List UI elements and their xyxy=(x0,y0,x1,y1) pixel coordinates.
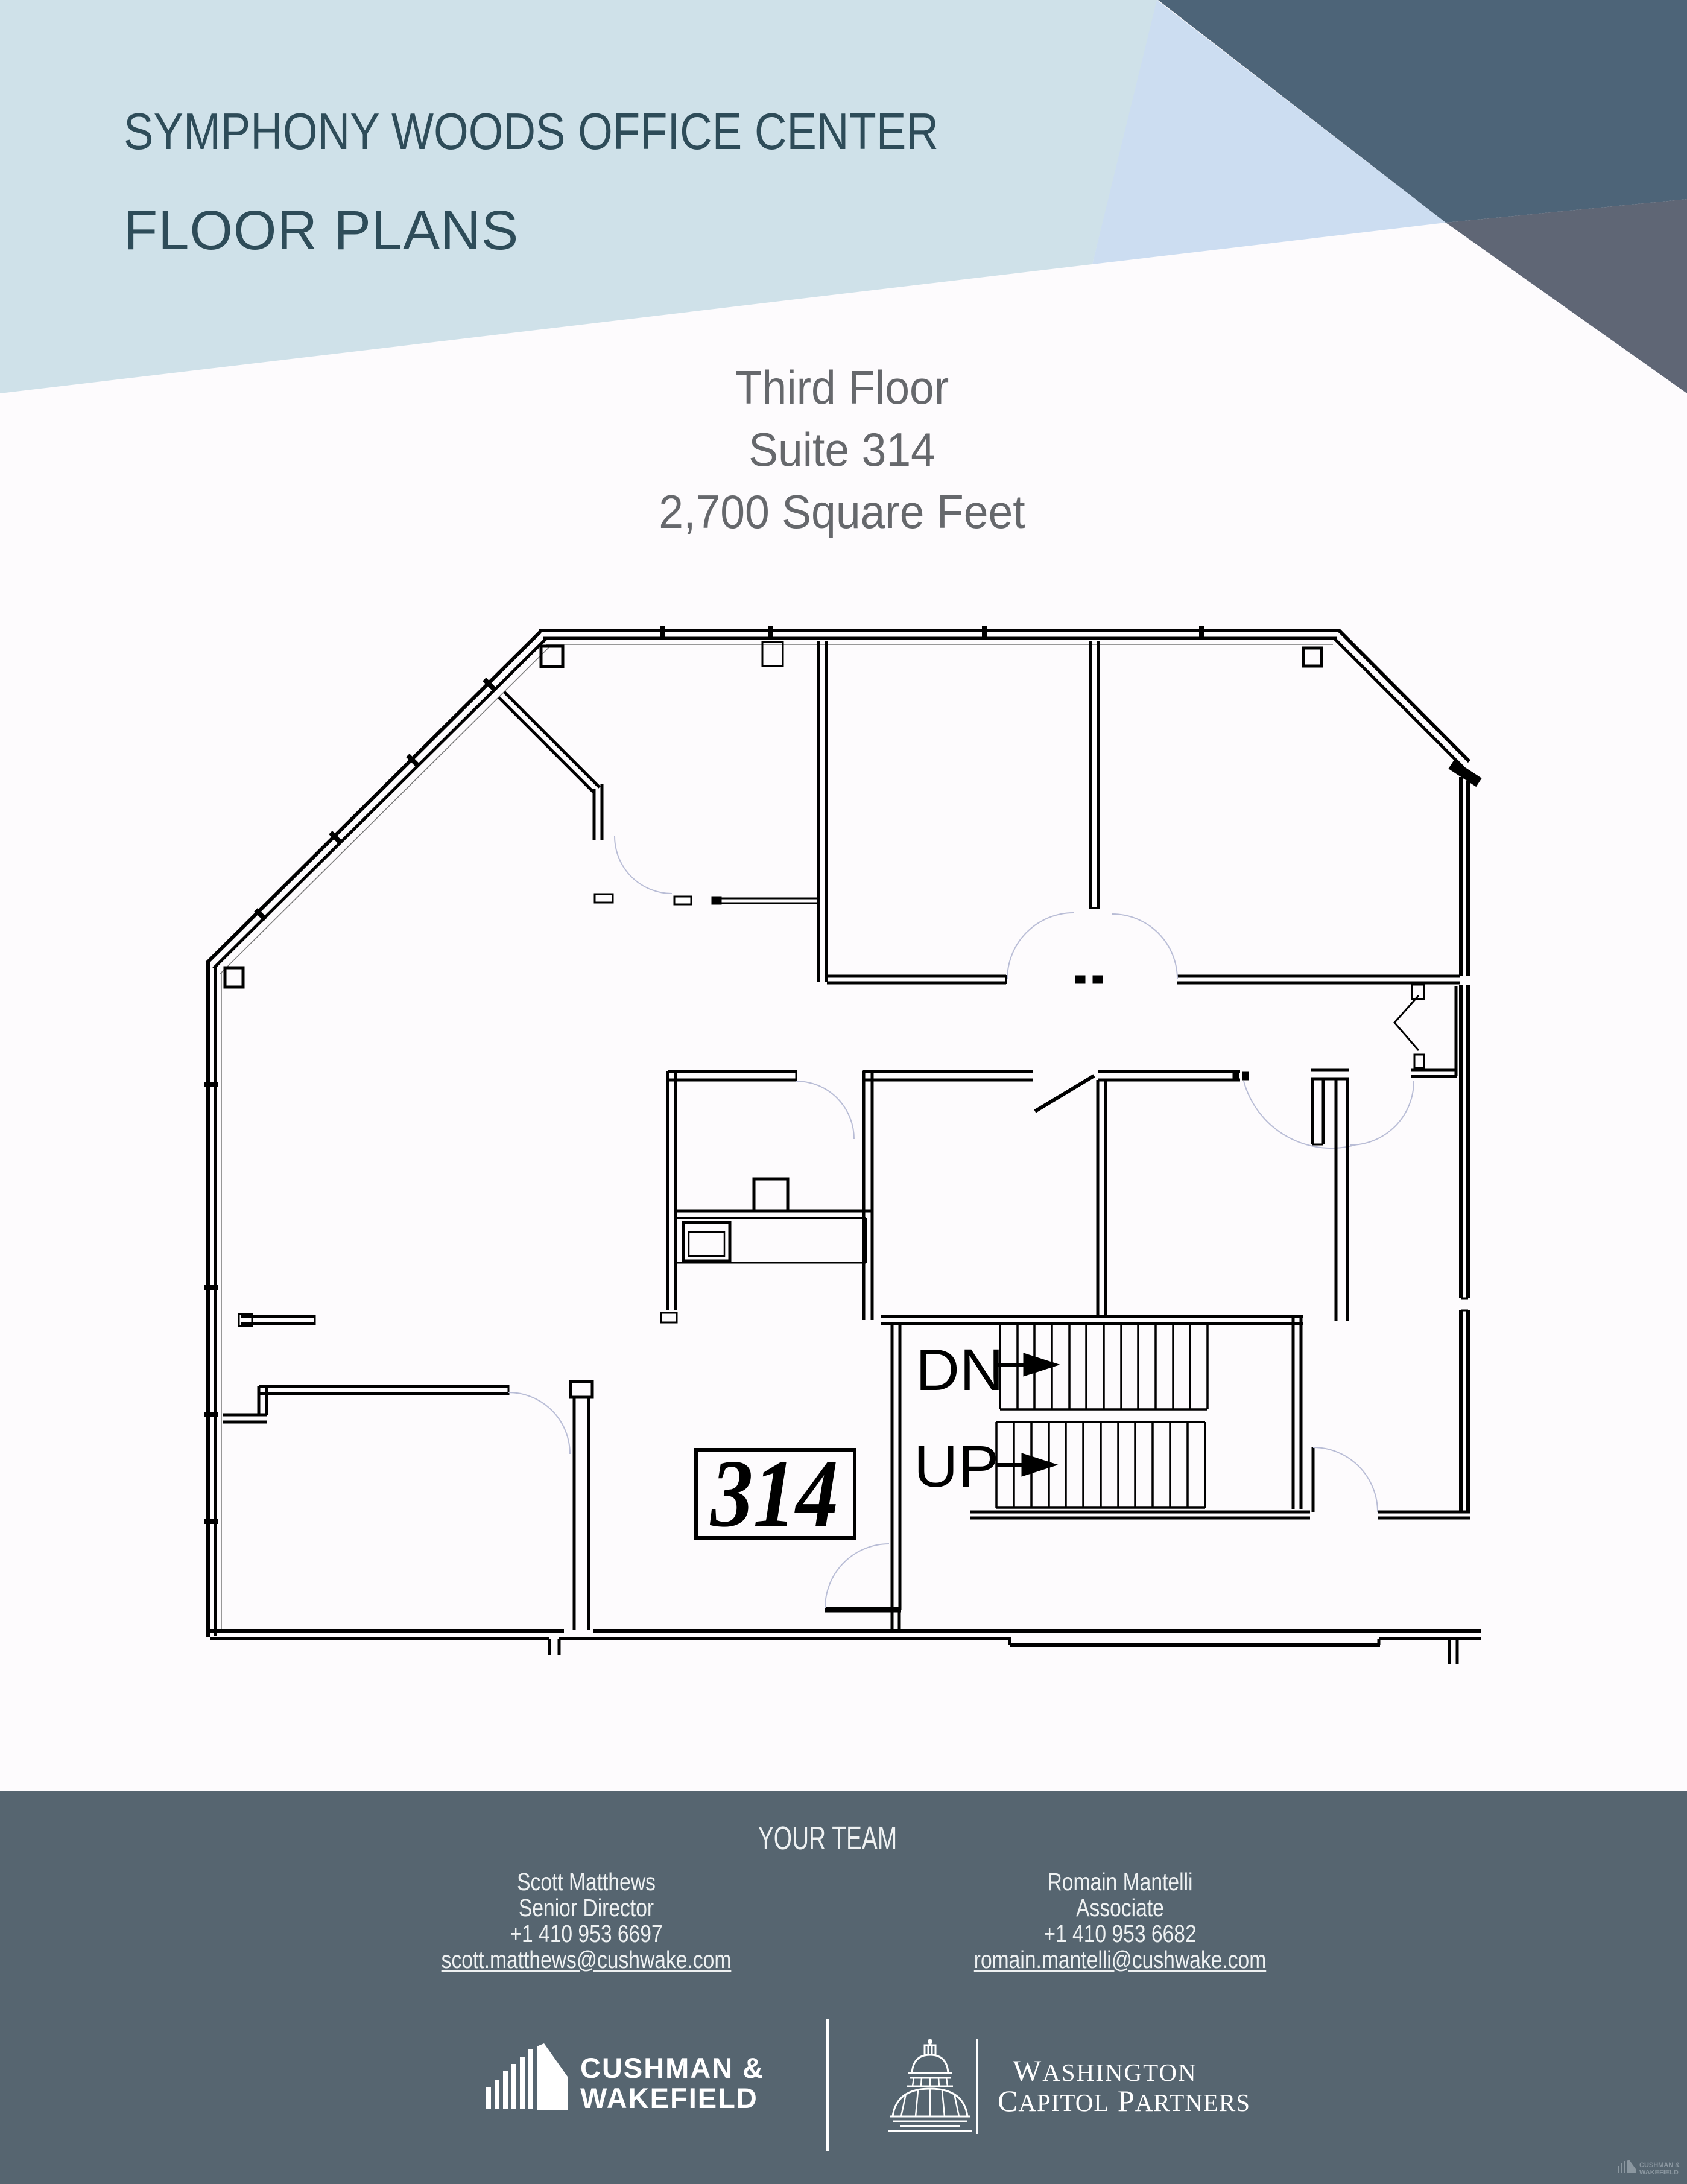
svg-text:WAKEFIELD: WAKEFIELD xyxy=(1639,2169,1679,2176)
svg-text:CUSHMAN &: CUSHMAN & xyxy=(580,2052,764,2084)
svg-text:314: 314 xyxy=(709,1440,838,1547)
svg-text:CUSHMAN &: CUSHMAN & xyxy=(1639,2162,1680,2169)
svg-text:UP: UP xyxy=(914,1433,999,1499)
svg-text:WASHINGTON: WASHINGTON xyxy=(1013,2054,1197,2087)
svg-text:WAKEFIELD: WAKEFIELD xyxy=(580,2082,758,2114)
svg-text:CAPITOL PARTNERS: CAPITOL PARTNERS xyxy=(998,2084,1250,2118)
svg-text:DN: DN xyxy=(916,1337,1004,1403)
